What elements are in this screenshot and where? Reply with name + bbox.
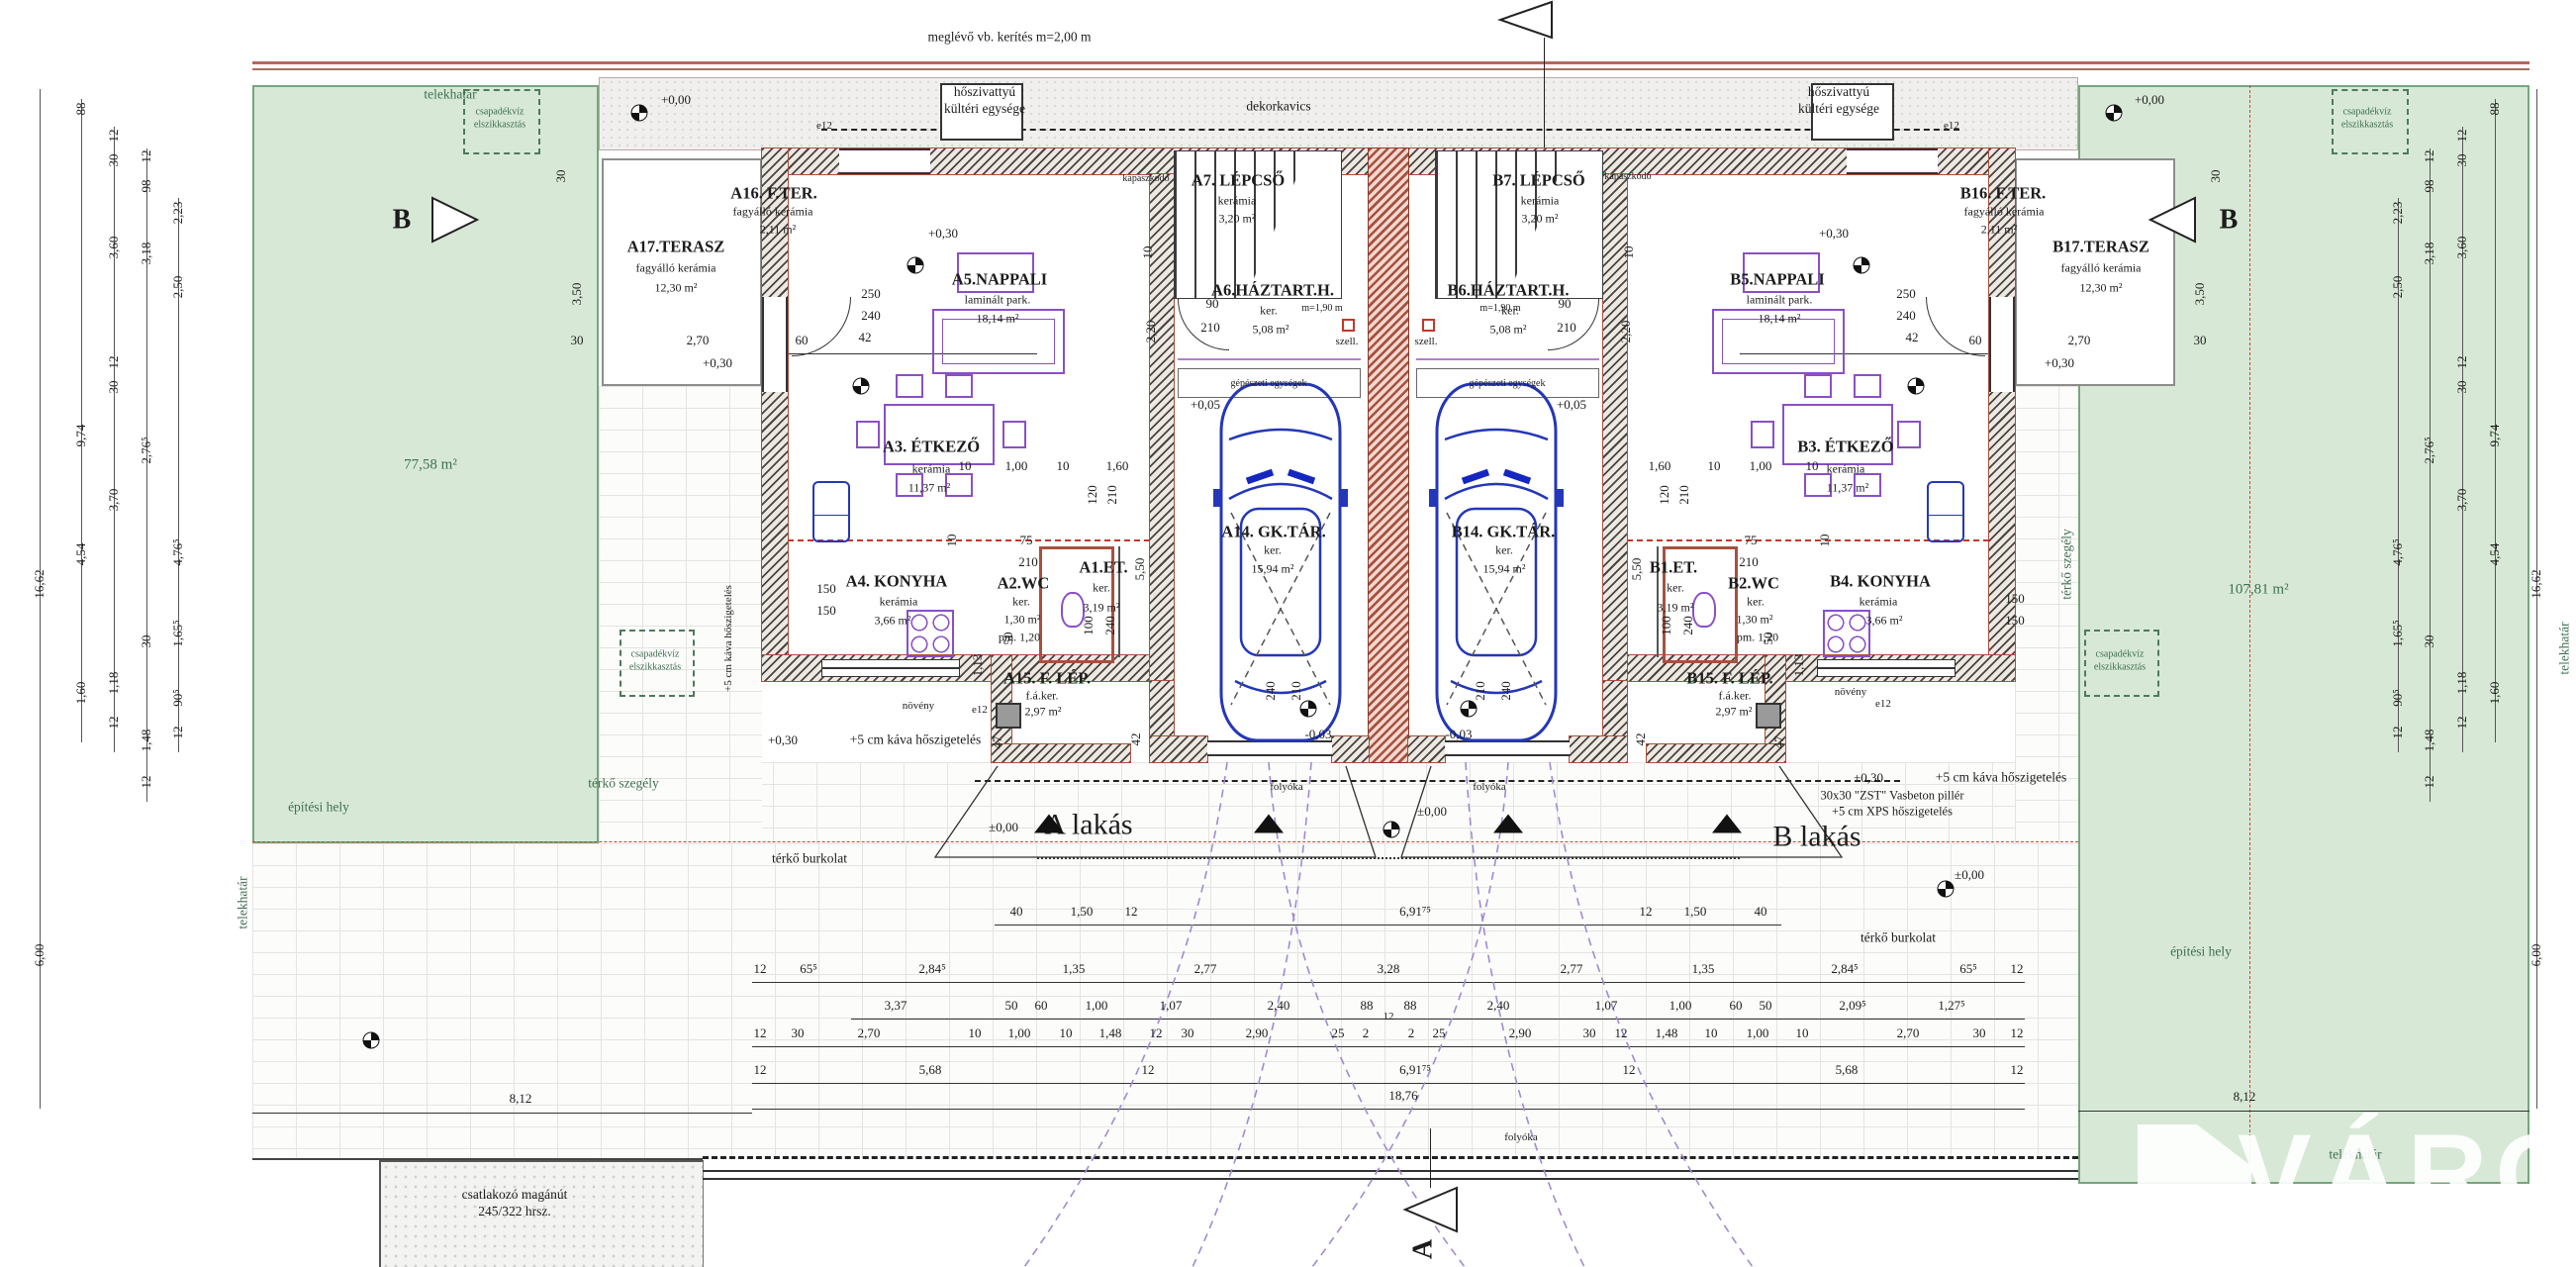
dim: 12 [1383, 1011, 1394, 1024]
dim-line [2462, 127, 2463, 752]
room-a5-name: A5.NAPPALI [952, 270, 1047, 291]
fence-label: meglévő vb. kerítés m=2,00 m [927, 30, 1091, 47]
dim: 50 [1761, 633, 1776, 645]
e12-bottom-left: e12 [972, 704, 988, 718]
dim: 42 [859, 330, 872, 345]
stove-b [1823, 610, 1870, 657]
dim: 90 [1206, 296, 1219, 312]
room-a7-name: A7. LÉPCSŐ [1192, 171, 1285, 192]
room-b15-name: B15. F. LÉP. [1686, 669, 1772, 690]
room-a1-area: 3,19 m² [1084, 601, 1120, 616]
chair [1002, 421, 1026, 448]
section-marker-top [1500, 2, 1552, 38]
sliding-door-a [839, 148, 930, 174]
room-a17-finish: fagyálló kerámia [636, 261, 716, 276]
room-b7-name: B7. LÉPCSŐ [1492, 171, 1585, 192]
dim: 1,65⁵ [170, 620, 186, 646]
dim: 5,50 [1629, 558, 1645, 581]
dim: 210 [1557, 320, 1576, 336]
dim: 2,50 [2390, 276, 2406, 299]
terrace-door-a [762, 297, 788, 392]
telekhatar-left: telekhatár [236, 876, 252, 928]
noveny-left: növény [903, 700, 934, 714]
room-b14-area: 15,94 m² [1483, 562, 1526, 577]
dim: 12 [2011, 961, 2024, 977]
parapet-a: m=1,90 m [1301, 303, 1342, 316]
dim: 10 [1621, 246, 1637, 259]
telekhatar-top: telekhatár [424, 87, 476, 104]
dim: 9,74 [73, 425, 89, 447]
dim: 150 [2005, 613, 2025, 629]
dim: 1,00 [1747, 1025, 1769, 1041]
canopy-dotted [1037, 857, 1740, 859]
dim: 12 [2454, 356, 2470, 369]
room-a17-area: 12,30 m² [655, 281, 698, 296]
dim: 2,70 [858, 1025, 881, 1041]
level-005-garage-a: +0,05 [1191, 397, 1220, 413]
dim: 12 [1125, 904, 1138, 920]
dim: 40 [1010, 904, 1023, 920]
dim: 30 [139, 635, 154, 648]
chair [1854, 374, 1881, 398]
dim: 10 [944, 535, 960, 547]
dim: 42 [1128, 733, 1144, 746]
dim: 12 [1150, 1025, 1163, 1041]
kava-left-text: +5 cm káva hőszigetelés [850, 732, 981, 749]
room-b6-area: 5,08 m² [1490, 323, 1527, 338]
dim: 88 [73, 103, 89, 116]
dim: 240 [1263, 681, 1279, 701]
dim: 5,50 [1132, 558, 1148, 581]
dim: 1,48 [1656, 1025, 1678, 1041]
dim-line [252, 1113, 752, 1114]
room-a5-area: 18,14 m² [977, 312, 1019, 327]
vent-a [1342, 319, 1355, 332]
room-b2-area: 1,30 m² [1737, 613, 1773, 628]
dim-line [2495, 99, 2496, 742]
level-pm000-center: ±0,00 [1417, 804, 1447, 820]
kava-vertical: +5 cm káva hőszigetelés [722, 585, 736, 692]
level-cross [1383, 822, 1400, 838]
dim: 1,07 [1595, 998, 1618, 1014]
dim: 1,48 [1099, 1025, 1122, 1041]
level-cross [2106, 105, 2123, 122]
dim: 90⁵ [170, 689, 186, 707]
room-a6-finish: ker. [1260, 304, 1278, 319]
dim: 47 [1771, 736, 1787, 749]
dim: 2,76⁵ [139, 437, 154, 463]
dim: 1,18 [106, 672, 122, 695]
soakaway-top-right: csapadékvíz elszikkasztás [2341, 107, 2393, 132]
room-b2-finish: ker. [1747, 595, 1765, 610]
room-b1-finish: ker. [1667, 581, 1684, 596]
dim: 150 [816, 603, 836, 619]
dim: 240 [1680, 616, 1696, 635]
dim-line [752, 1109, 2025, 1110]
dim-line [752, 982, 2025, 983]
garden-area-right: 107,81 m² [2228, 581, 2288, 600]
entrance-arrow [1712, 815, 1742, 833]
entrance-arrow [1254, 815, 1284, 833]
dim: 30 [106, 381, 122, 394]
dim: 25 [1332, 1025, 1345, 1041]
dim: 65⁵ [800, 961, 817, 977]
terko-szegely-right: térkő szegély [2059, 529, 2076, 600]
room-a15-name: A15. F. LÉP. [1003, 669, 1091, 690]
dim: 12 [2422, 776, 2437, 789]
room-a3-finish: kerámia [912, 462, 951, 477]
section-b-left-letter: B [393, 203, 412, 238]
dim-line [114, 127, 115, 752]
dim: 3,70 [106, 489, 122, 512]
dim: 3,70 [2454, 489, 2470, 512]
room-a16-area: 2,11 m² [760, 223, 797, 238]
pillar-note: 30x30 "ZST" Vasbeton pillér +5 cm XPS hő… [1820, 788, 1963, 819]
dim: 150 [816, 581, 836, 597]
room-b16-name: B16. F.TER. [1960, 184, 2047, 205]
terrace-door-b [1989, 297, 2015, 392]
dim: 1,50 [1071, 904, 1094, 920]
dim: 5,68 [1836, 1062, 1859, 1078]
room-a7-finish: kerámia [1218, 194, 1257, 209]
e12-top-right: e12 [1944, 120, 1959, 134]
level-cross [1908, 378, 1925, 395]
dim: 240 [861, 308, 881, 324]
dim: 210 [1104, 485, 1120, 505]
dim: 88 [1361, 998, 1374, 1014]
room-b6-finish: ker. [1501, 304, 1519, 319]
dim: 250 [1896, 286, 1916, 302]
wall-party [1369, 148, 1408, 762]
dim: 2,84⁵ [1831, 961, 1858, 977]
soakaway-mid-right: csapadékvíz elszikkasztás [2094, 649, 2146, 674]
dim: 5,68 [919, 1062, 942, 1078]
dim: 30 [792, 1025, 805, 1041]
boundary-double-1 [703, 1170, 2078, 1172]
dim: 12 [754, 1025, 767, 1041]
dim: 240 [1896, 308, 1916, 324]
dim: 100 [1081, 616, 1097, 635]
room-b15-finish: f.á.ker. [1719, 689, 1752, 704]
dim: 2,77 [1194, 961, 1217, 977]
noveny-right: növény [1835, 686, 1866, 700]
dim: 12 [1142, 1062, 1155, 1078]
dim: 12 [754, 1062, 767, 1078]
dim: 2,84⁵ [918, 961, 945, 977]
dim-line [851, 1019, 2025, 1020]
vent-line-b [1416, 358, 1599, 360]
dim: 1,00 [1005, 458, 1028, 474]
existing-fence-line [252, 61, 2529, 70]
room-a17-name: A17.TERASZ [627, 238, 725, 258]
sink-a [812, 481, 850, 542]
heatpump-right-label: hőszivattyú kültéri egysége [1798, 84, 1879, 118]
dim: 88 [2487, 103, 2503, 116]
e12-top-left: e12 [816, 120, 832, 134]
room-a4-area: 3,66 m² [875, 614, 911, 629]
garden-area-left: 77,58 m² [404, 456, 457, 475]
room-b6-name: B6.HÁZTART.H. [1447, 281, 1569, 302]
level-030-a5: +0,30 [928, 226, 958, 242]
dim: 10 [1705, 1025, 1718, 1041]
chair [856, 421, 880, 448]
level-030-kava-left: +0,30 [768, 732, 798, 748]
level-030-terrace-a: +0,30 [703, 355, 732, 371]
dim: 120 [1085, 485, 1100, 505]
dim: 12 [1640, 904, 1653, 920]
dim: 3,50 [2192, 283, 2208, 306]
gepeszeti-b: gépészeti egységek [1470, 378, 1546, 391]
dim: 10 [1140, 246, 1156, 259]
dim: 42 [1633, 733, 1649, 746]
dim: 75 [1745, 533, 1758, 548]
dim: 10 [1817, 535, 1833, 547]
room-b14-name: B14. GK.TÁR. [1452, 523, 1556, 543]
dim: 2,20 [1143, 321, 1159, 343]
level-cross [907, 257, 924, 274]
stove-a [906, 610, 954, 657]
dim: 2,40 [1268, 998, 1290, 1014]
dim: 30 [106, 154, 122, 167]
folyoka-garage-b: folyóka [1473, 781, 1506, 795]
room-a3-name: A3. ÉTKEZŐ [883, 438, 980, 458]
room-b5-area: 18,14 m² [1759, 312, 1801, 327]
dim: 3,60 [106, 237, 122, 259]
dim: 60 [1035, 998, 1048, 1014]
dim: 2,40 [1487, 998, 1510, 1014]
dim: 6,00 [2528, 944, 2544, 967]
entrance-arrow [1493, 815, 1523, 833]
level-005-garage-b: +0,05 [1557, 397, 1586, 413]
room-b7-finish: kerámia [1521, 194, 1560, 209]
chair [1751, 421, 1774, 448]
room-a1-name: A1.ET. [1079, 558, 1127, 579]
dim: 2,20 [1618, 321, 1634, 343]
road-label: csatlakozó magánút 245/322 hrsz. [462, 1187, 568, 1220]
room-a7-area: 3,20 m² [1219, 212, 1256, 227]
room-a14-finish: ker. [1264, 543, 1282, 558]
dim: 1,35 [1692, 961, 1715, 977]
dim: 1,60 [73, 682, 89, 705]
level-m003-a: -0,03 [1304, 727, 1331, 742]
dim: 12 [139, 150, 154, 163]
dim-line [995, 925, 1781, 926]
dim: 12 [170, 727, 186, 739]
dim: 12 [1623, 1062, 1636, 1078]
chair [945, 374, 973, 398]
dim: 30 [2454, 381, 2470, 394]
dim: 47 [990, 736, 1005, 749]
room-b7-area: 3,20 m² [1522, 212, 1559, 227]
dim: 8,12 [510, 1091, 532, 1107]
room-b4-name: B4. KONYHA [1830, 572, 1931, 593]
dim: 6,00 [32, 944, 48, 967]
dim-line [752, 1083, 2025, 1084]
room-b3-area: 11,37 m² [1827, 481, 1869, 496]
dim: 1,13 [970, 654, 986, 677]
dim: 12 [106, 356, 122, 369]
epitesi-hely-right: építési hely [2170, 944, 2232, 961]
level-000-topleft: +0,00 [661, 92, 691, 108]
room-a15-area: 2,97 m² [1025, 705, 1062, 720]
dim-overall-width: 18,76 [1388, 1088, 1417, 1104]
folyoka-bottom: folyóka [1504, 1131, 1538, 1145]
level-030-b5: +0,30 [1819, 226, 1849, 242]
level-pm000-right: ±0,00 [1955, 867, 1984, 883]
room-b3-finish: kerámia [1827, 462, 1865, 477]
gepeszeti-a: gépészeti egységek [1231, 378, 1307, 391]
dim: 3,60 [2454, 237, 2470, 259]
chair [896, 374, 923, 398]
dim: 30 [571, 333, 584, 348]
section-line-bottom [1430, 1128, 1431, 1188]
dim: 30 [2454, 154, 2470, 167]
dim: 1,60 [1106, 458, 1129, 474]
kapaszkodo-a: kapaszkodó [1122, 173, 1169, 186]
room-b15-area: 2,97 m² [1716, 705, 1753, 720]
window-kitchen-a [821, 659, 960, 677]
room-a6-name: A6.HÁZTART.H. [1211, 281, 1334, 302]
dim: 40 [1755, 904, 1767, 920]
dim: 98 [2422, 180, 2437, 193]
room-a6-area: 5,08 m² [1253, 323, 1289, 338]
room-b16-area: 2,11 m² [1981, 223, 2018, 238]
unit-b-label: B lakás [1772, 818, 1860, 855]
dim: 8,12 [2234, 1089, 2256, 1105]
dim: 3,50 [569, 283, 585, 306]
dim: 65⁵ [1959, 961, 1977, 977]
dim: 2,70 [687, 333, 710, 348]
telekhatar-right: telekhatár [2557, 622, 2574, 674]
dim: 2,77 [1561, 961, 1583, 977]
dim: 6,91⁷⁵ [1399, 1062, 1431, 1078]
dim: 60 [796, 333, 809, 348]
terko-burkolat-left: térkő burkolat [772, 851, 847, 868]
dim: 12 [106, 130, 122, 143]
dim: 90 [1559, 296, 1572, 312]
dim: 12 [2422, 150, 2437, 163]
room-a2-area: 1,30 m² [1004, 613, 1041, 628]
dim: 1,35 [1063, 961, 1086, 977]
e12-bottom-right: e12 [1875, 698, 1891, 712]
dim: 1,48 [2422, 730, 2437, 752]
dim: 1,65⁵ [2390, 620, 2406, 646]
dim: 10 [1057, 458, 1070, 474]
section-b-right-letter: B [2220, 203, 2239, 238]
section-line-top [1544, 38, 1545, 148]
dim: 120 [1657, 485, 1672, 505]
dim: 10 [1796, 1025, 1809, 1041]
room-a1-finish: ker. [1093, 581, 1110, 596]
dim: 1,00 [1670, 998, 1692, 1014]
room-a4-name: A4. KONYHA [846, 572, 948, 593]
dim: 50 [1001, 633, 1016, 645]
soakaway-top-left: csapadékvíz elszikkasztás [474, 107, 525, 132]
room-b17-name: B17.TERASZ [2052, 238, 2149, 258]
room-a5-finish: laminált park. [965, 293, 1031, 308]
room-a3-area: 11,37 m² [908, 481, 951, 496]
terko-szegely-left: térkő szegély [588, 776, 659, 793]
dim: 1,00 [1086, 998, 1108, 1014]
level-cross [1461, 701, 1478, 718]
dim: 210 [1018, 554, 1038, 570]
room-b17-finish: fagyálló kerámia [2061, 261, 2142, 276]
dim: 1,50 [1684, 904, 1707, 920]
dim: 10 [1060, 1025, 1073, 1041]
szell-a: szell. [1336, 336, 1359, 349]
section-a-bottom-letter: A [1406, 1239, 1441, 1259]
dim: 10 [1806, 458, 1819, 474]
level-m003-b: -0,03 [1445, 727, 1472, 742]
level-030-terrace-b: +0,30 [2045, 355, 2074, 371]
boundary-left-bottom [252, 1158, 703, 1160]
vent-line-a [1178, 358, 1361, 360]
heatpump-left-label: hőszivattyú kültéri egysége [944, 84, 1025, 118]
dim: 10 [969, 1025, 982, 1041]
dim: 2,70 [2068, 333, 2091, 348]
dim: 1,00 [1750, 458, 1772, 474]
dim: 2,23 [170, 202, 186, 225]
room-a14-area: 15,94 m² [1252, 562, 1294, 577]
dim: 210 [1739, 554, 1759, 570]
floorplan-page: { "site": { "fence_note": "meglévő vb. k… [0, 0, 2576, 1267]
dim: 210 [1288, 681, 1304, 701]
room-b4-area: 3,66 m² [1866, 614, 1903, 629]
dim: 2,23 [2390, 202, 2406, 225]
dim: 2,09⁵ [1839, 998, 1865, 1014]
dim: 12 [1615, 1025, 1628, 1041]
dim: 30 [2422, 635, 2437, 648]
dim: 25 [1433, 1025, 1446, 1041]
szell-b: szell. [1415, 336, 1438, 349]
dim: 4,54 [73, 543, 89, 566]
dim-line [81, 99, 82, 742]
window-kitchen-b [1817, 659, 1956, 677]
wall-vestibule-b-front [1647, 744, 1785, 762]
room-a16-finish: fagyálló kerámia [733, 205, 813, 220]
dim: 60 [1730, 998, 1743, 1014]
dim: 12 [2011, 1062, 2024, 1078]
level-cross [1300, 701, 1317, 718]
dim: 3,18 [139, 243, 154, 265]
sliding-door-b [1847, 148, 1938, 174]
dim: 30 [2194, 333, 2207, 348]
level-cross [1854, 257, 1870, 274]
dim: 30 [553, 170, 569, 183]
dim: 4,54 [2487, 543, 2503, 566]
dim: 30 [1583, 1025, 1596, 1041]
dim: 2,90 [1246, 1025, 1269, 1041]
room-b16-finish: fagyálló kerámia [1964, 205, 2045, 220]
dim: 42 [1906, 330, 1919, 345]
dim: 9,74 [2487, 425, 2503, 447]
boundary-heavy-dash [703, 1156, 2078, 1159]
dim: 90⁵ [2390, 689, 2406, 707]
entrance-arrow [1034, 815, 1064, 833]
room-b2-name: B2.WC [1728, 574, 1779, 595]
terko-burkolat-right: térkő burkolat [1860, 930, 1936, 947]
dim: 240 [1498, 681, 1514, 701]
kava-right-text: +5 cm káva hőszigetelés [1936, 770, 2066, 787]
building-zone-dashed-red-v [2249, 85, 2250, 1182]
dim: 50 [1005, 998, 1018, 1014]
dekorkavics-label: dekorkavics [1246, 99, 1310, 116]
level-000-topright: +0,00 [2135, 92, 2164, 108]
dim: 210 [1473, 681, 1488, 701]
dim: 1,48 [139, 730, 154, 752]
section-marker-bottom [1405, 1188, 1457, 1231]
epitesi-hely-left: építési hely [288, 800, 349, 817]
